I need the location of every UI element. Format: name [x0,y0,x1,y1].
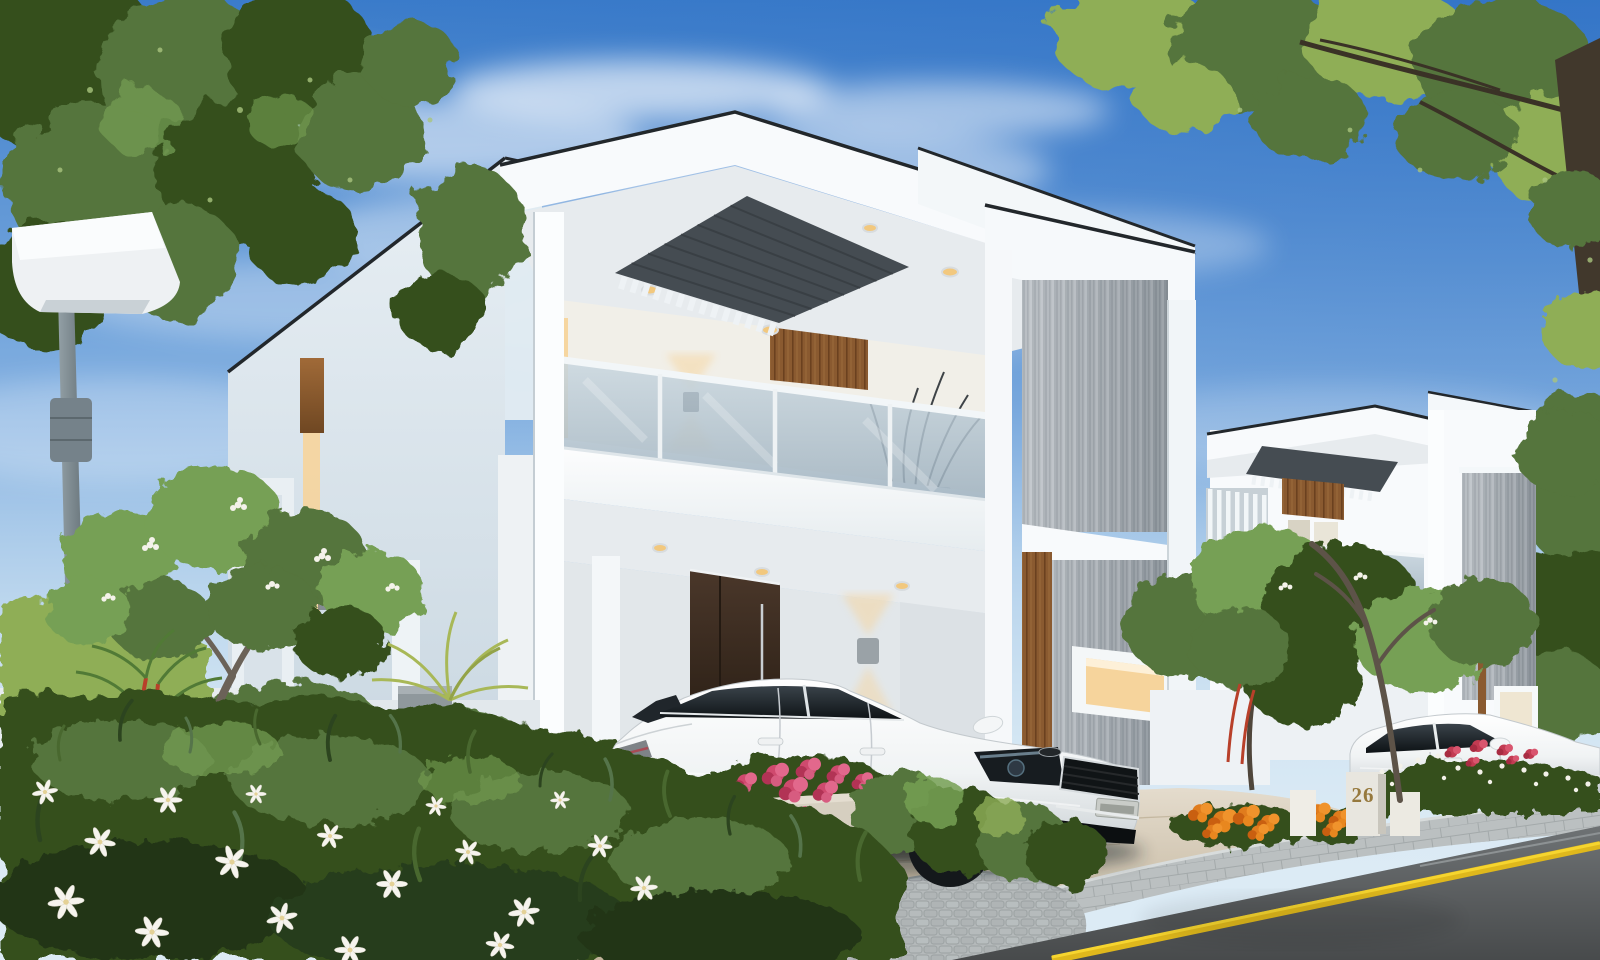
house-number-text: 26 [1352,783,1375,807]
car-door-handle [758,738,783,745]
car-badge [1039,748,1061,757]
wood-slot-window [300,358,324,433]
lamp-control-box [50,398,92,462]
timber-strip [1022,552,1052,760]
second-villa-wood-band [1282,478,1344,520]
marigold-beds [1170,803,1376,848]
car-door-handle [860,748,885,755]
villa-scene: 26 [0,0,1600,960]
corner-column [534,212,564,782]
architectural-rendering: 26 [0,0,1600,960]
